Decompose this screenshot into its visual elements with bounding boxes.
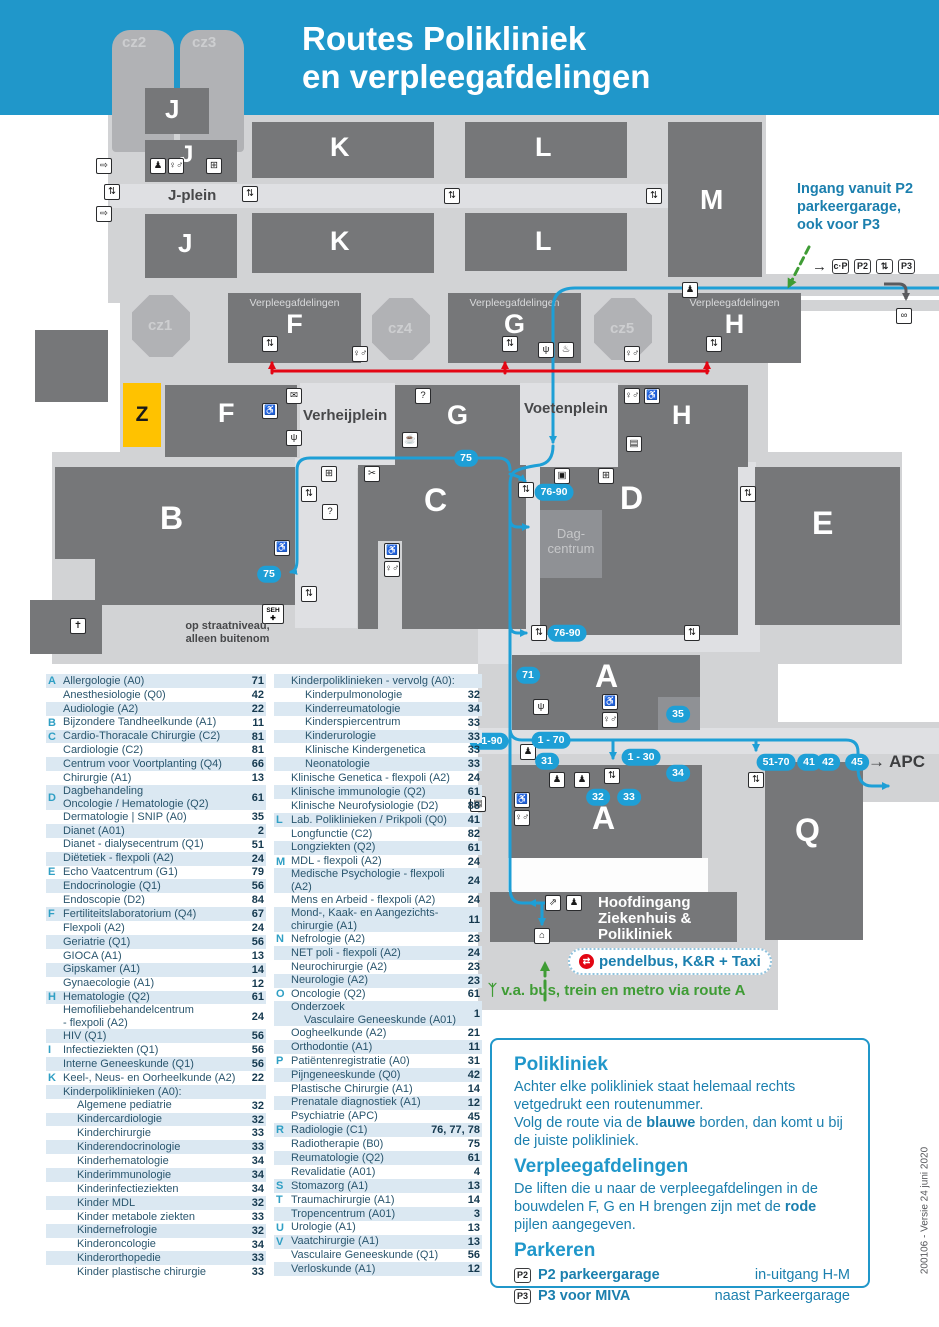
directory-row: Radiotherapie (B0)75	[274, 1137, 482, 1151]
ward-h-label: H	[668, 309, 801, 340]
elevator-icon: ⇅	[684, 625, 700, 641]
directory-route-number: 24	[248, 922, 264, 934]
directory-row: OOncologie (Q2)61	[274, 988, 482, 1002]
directory-row: Klinische Kindergenetica33	[274, 743, 482, 757]
directory-route-number: 32	[248, 1114, 264, 1126]
directory-name: Mond-, Kaak- en Aangezichts-chirurgie (A…	[291, 907, 464, 932]
directory-letter: K	[48, 1072, 63, 1084]
walking-icon: ᛉ	[488, 982, 497, 999]
directory-name: Kinderpoliklinieken - vervolg (A0):	[291, 675, 480, 687]
shop-icon: ⊞	[321, 466, 337, 482]
directory-row: Pijngeneeskunde (Q0)42	[274, 1068, 482, 1082]
directory-row: Audiologie (A2)22	[46, 702, 266, 716]
building-l2-label: L	[535, 226, 552, 257]
bus-route-note: ᛉ v.a. bus, trein en metro via route A	[488, 982, 745, 999]
directory-route-number: 1	[470, 1008, 480, 1020]
legend-p2-label: P2 parkeergarage	[538, 1267, 660, 1283]
directory-name: Gynaecologie (A1)	[63, 977, 248, 989]
arrow-right-icon: →	[812, 258, 827, 275]
directory-route-number: 32	[248, 1100, 264, 1112]
p3-parking-icon: P3	[898, 259, 915, 274]
building-c-ext2	[402, 541, 526, 629]
directory-route-number: 4	[470, 1166, 480, 1178]
directory-name: Cardiologie (C2)	[63, 744, 248, 756]
legend-verpleeg-pre: De liften die u naar de verpleegafdeling…	[514, 1181, 818, 1215]
directory-row: Gipskamer (A1)14	[46, 963, 266, 977]
directory-row: Kinderpulmonologie32	[274, 688, 482, 702]
directory-row: PPatiëntenregistratie (A0)31	[274, 1054, 482, 1068]
lift-icon: ⇅	[876, 259, 893, 274]
directory-route-number: 66	[248, 758, 264, 770]
directory-route-number: 32	[464, 689, 480, 701]
route-bubble-34: 34	[666, 765, 690, 782]
building-m-label: M	[700, 184, 723, 216]
directory-name: Kinder MDL	[63, 1197, 248, 1209]
directory-name: Verloskunde (A1)	[291, 1263, 464, 1275]
verheijplein-square	[300, 383, 395, 468]
directory-route-number: 14	[464, 1194, 480, 1206]
toilets-icon: ♀♂	[384, 561, 400, 577]
directory-name: Medische Psychologie - flexpoli (A2)	[291, 868, 464, 893]
directory-name: Nefrologie (A2)	[291, 933, 464, 945]
directory-row: Cardiologie (C2)81	[46, 743, 266, 757]
elevator-icon: ⇅	[646, 188, 662, 204]
directory-name-line2: chirurgie (A1)	[291, 920, 464, 932]
directory-name: Longziekten (Q2)	[291, 841, 464, 853]
wheelchair-icon: ♿	[274, 540, 290, 556]
directory-name: Anesthesiologie (Q0)	[63, 689, 248, 701]
bell-icon: ♨	[558, 342, 574, 358]
building-e	[755, 467, 900, 625]
street-level-note-line2: alleen buitenom	[186, 633, 270, 645]
directory-route-number: 51	[248, 839, 264, 851]
directory-letter: C	[48, 731, 63, 743]
directory-name: Klinische Neurofysiologie (D2)	[291, 800, 464, 812]
directory-name: Bijzondere Tandheelkunde (A1)	[63, 716, 248, 728]
directory-row: NNefrologie (A2)23	[274, 932, 482, 946]
directory-row: Diëtetiek - flexpoli (A2)24	[46, 852, 266, 866]
directory-route-number: 56	[248, 936, 264, 948]
directory-route-number: 71	[248, 675, 264, 687]
directory-name: Endocrinologie (Q1)	[63, 880, 248, 892]
directory-route-number: 81	[248, 731, 264, 743]
directory-column-2: Kinderpoliklinieken - vervolg (A0):Kinde…	[274, 674, 482, 1276]
route-bubble-76-90: 76-90	[548, 625, 587, 642]
directory-row: Chirurgie (A1)13	[46, 771, 266, 785]
directory-name: Kindernefrologie	[63, 1224, 248, 1236]
route-bubble-1-70: 1 - 70	[532, 732, 571, 749]
elevator-icon: ⇅	[531, 625, 547, 641]
toilets-icon: ♀♂	[624, 346, 640, 362]
directory-route-number: 24	[248, 853, 264, 865]
directory-letter: H	[48, 991, 63, 1003]
directory-name: Kinder plastische chirurgie	[63, 1266, 248, 1278]
directory-route-number: 42	[248, 689, 264, 701]
pendelbus-label: pendelbus, K&R + Taxi	[599, 953, 761, 970]
directory-row: TTraumachirurgie (A1)14	[274, 1193, 482, 1207]
wheelchair-icon: ♿	[644, 388, 660, 404]
tower-cz3-label: cz3	[192, 34, 216, 51]
directory-row: Kinderorthopedie33	[46, 1251, 266, 1265]
elevator-icon: ⇅	[604, 768, 620, 784]
legend-verpleeg-post: pijlen aangegeven.	[514, 1217, 636, 1233]
apc-text: APC	[889, 752, 925, 771]
directory-name: NET poli - flexpoli (A2)	[291, 947, 464, 959]
directory-row: AAllergologie (A0)71	[46, 674, 266, 688]
directory-row: IInfectieziekten (Q1)56	[46, 1043, 266, 1057]
toilets-icon: ♀♂	[602, 712, 618, 728]
directory-row: Longfunctie (C2)82	[274, 827, 482, 841]
directory-name: Lab. Poliklinieken / Prikpoli (Q0)	[291, 814, 464, 826]
directory-route-number: 67	[248, 908, 264, 920]
page-title-line1: Routes Polikliniek	[302, 20, 650, 58]
directory-route-number: 22	[248, 1072, 264, 1084]
building-a-lower-label: A	[592, 800, 615, 837]
directory-name: Gipskamer (A1)	[63, 963, 248, 975]
wheelchair-icon: ♿	[602, 694, 618, 710]
directory-route-number: 76, 77, 78	[427, 1124, 480, 1136]
seh-label: SEH	[266, 607, 279, 614]
entrance-hall	[508, 858, 708, 892]
directory-route-number: 11	[464, 914, 480, 926]
directory-route-number: 23	[464, 961, 480, 973]
legend-polikliniek-p1: Achter elke polikliniek staat helemaal r…	[514, 1078, 850, 1114]
directory-name: Psychiatrie (APC)	[291, 1110, 464, 1122]
directory-row: Neonatologie33	[274, 757, 482, 771]
directory-name-line2: Oncologie / Hematologie (Q2)	[63, 798, 248, 810]
directory-name: Kinderpoliklinieken (A0):	[63, 1086, 264, 1098]
street-level-note: op straatniveau, alleen buitenom	[165, 620, 290, 646]
directory-name: Urologie (A1)	[291, 1221, 464, 1233]
elevator-icon: ⇅	[518, 482, 534, 498]
directory-row: Revalidatie (A01)4	[274, 1165, 482, 1179]
directory-name: Neurochirurgie (A2)	[291, 961, 464, 973]
directory-name: Longfunctie (C2)	[291, 828, 464, 840]
directory-row: Mond-, Kaak- en Aangezichts-chirurgie (A…	[274, 907, 482, 932]
ward-h-title: Verpleegafdelingen	[668, 297, 801, 309]
directory-name-line2: - flexpoli (A2)	[63, 1017, 248, 1029]
directory-row: Centrum voor Voortplanting (Q4)66	[46, 757, 266, 771]
directory-route-number: 3	[470, 1208, 480, 1220]
directory-route-number: 33	[248, 1141, 264, 1153]
directory-row: Gynaecologie (A1)12	[46, 977, 266, 991]
wheelchair-icon: ♿	[384, 543, 400, 559]
bicycle-icon: ∞	[896, 308, 912, 324]
directory-row: Tropencentrum (A01)3	[274, 1207, 482, 1221]
directory-name: Geriatrie (Q1)	[63, 936, 248, 948]
directory-row: UUrologie (A1)13	[274, 1221, 482, 1235]
directory-route-number: 13	[464, 1222, 480, 1234]
reception-icon: ♟	[682, 282, 698, 298]
directory-route-number: 34	[248, 1155, 264, 1167]
directory-route-number: 75	[464, 1138, 480, 1150]
directory-name: Vasculaire Geneeskunde (Q1)	[291, 1249, 464, 1261]
directory-name: Chirurgie (A1)	[63, 772, 248, 784]
directory-name: Cardio-Thoracale Chirurgie (C2)	[63, 730, 248, 742]
directory-name: Radiologie (C1)	[291, 1124, 427, 1136]
directory-route-number: 79	[248, 866, 264, 878]
screen-icon: ▤	[626, 436, 642, 452]
directory-row: Interne Geneeskunde (Q1)56	[46, 1057, 266, 1071]
elevator-icon: ⇅	[502, 336, 518, 352]
directory-route-number: 13	[464, 1180, 480, 1192]
directory-route-number: 34	[248, 1239, 264, 1251]
directory-route-number: 81	[248, 744, 264, 756]
directory-route-number: 13	[248, 772, 264, 784]
legend-p2-row: P2 P2 parkeergarage in-uitgang H-M	[514, 1267, 850, 1283]
elevator-icon: ⇅	[301, 486, 317, 502]
route-bubble-51-70: 51-70	[757, 754, 796, 771]
directory-row: EEcho Vaatcentrum (G1)79	[46, 866, 266, 880]
directory-route-number: 35	[248, 811, 264, 823]
directory-row: Hemofiliebehandelcentrum- flexpoli (A2)2…	[46, 1004, 266, 1029]
legend-polikliniek-title: Polikliniek	[514, 1054, 850, 1076]
route-bubble-76-90: 76-90	[535, 484, 574, 501]
directory-route-number: 12	[464, 1097, 480, 1109]
verheijplein-label: Verheijplein	[303, 407, 387, 424]
directory-row: FFertiliteitslaboratorium (Q4)67	[46, 907, 266, 921]
building-j3-label: J	[178, 228, 192, 259]
directory-name: Neurologie (A2)	[291, 974, 464, 986]
directory-name: Dianet (A01)	[63, 825, 254, 837]
toilets-icon: ♀♂	[352, 346, 368, 362]
exit-icon: ⇨	[96, 158, 112, 174]
apc-arrow-icon: →	[868, 752, 885, 771]
directory-row: Neurochirurgie (A2)23	[274, 960, 482, 974]
directory-route-number: 56	[248, 1030, 264, 1042]
legend-polikliniek-p2: Volg de route via de blauwe borden, dan …	[514, 1114, 850, 1150]
directory-name: Tropencentrum (A01)	[291, 1208, 470, 1220]
directory-route-number: 33	[248, 1211, 264, 1223]
directory-row: Neurologie (A2)23	[274, 974, 482, 988]
dagcentrum-line1: Dag-	[557, 526, 585, 541]
directory-route-number: 45	[464, 1111, 480, 1123]
atm-icon: ▣	[554, 468, 570, 484]
p2-entrance-note: Ingang vanuit P2 parkeergarage, ook voor…	[797, 180, 913, 234]
directory-name: Centrum voor Voortplanting (Q4)	[63, 758, 248, 770]
scissors-icon: ✂	[364, 466, 380, 482]
directory-name: Kinderhematologie	[63, 1155, 248, 1167]
ward-h: Verpleegafdelingen H	[668, 293, 801, 363]
info-icon: ?	[415, 388, 431, 404]
door-icon: ⌂	[534, 928, 550, 944]
directory-name: Vaatchirurgie (A1)	[291, 1235, 464, 1247]
directory-row: Kinderimmunologie34	[46, 1168, 266, 1182]
directory-route-number: 56	[248, 1058, 264, 1070]
directory-row: Kinderpoliklinieken (A0):	[46, 1085, 266, 1099]
directory-route-number: 23	[464, 933, 480, 945]
directory-route-number: 14	[248, 964, 264, 976]
page-title: Routes Polikliniek en verpleegafdelingen	[302, 20, 650, 96]
directory-name: Orthodontie (A1)	[291, 1041, 464, 1053]
route-bubble-31: 31	[535, 753, 559, 770]
directory-letter: D	[48, 792, 63, 804]
ward-g-title: Verpleegafdelingen	[448, 297, 581, 309]
route-bubble-75: 75	[257, 566, 281, 583]
wheelchair-icon: ♿	[262, 403, 278, 419]
directory-letter: O	[276, 988, 291, 1000]
directory-row: Kinderoncologie34	[46, 1238, 266, 1252]
building-k1-label: K	[330, 132, 350, 163]
legend-p2-bold: blauwe	[646, 1115, 695, 1131]
restaurant-icon: ψ	[538, 342, 554, 358]
legend-box: Polikliniek Achter elke polikliniek staa…	[490, 1038, 870, 1288]
route-bubble-71: 71	[516, 667, 540, 684]
building-j1-label: J	[165, 94, 179, 125]
directory-name: Interne Geneeskunde (Q1)	[63, 1058, 248, 1070]
directory-route-number: 61	[248, 792, 264, 804]
directory-route-number: 24	[464, 875, 480, 887]
shop-icon: ⊞	[206, 158, 222, 174]
directory-route-number: 32	[248, 1225, 264, 1237]
directory-route-number: 12	[248, 978, 264, 990]
p2-entrance-line1: Ingang vanuit P2	[797, 180, 913, 198]
church-icon: ✝	[70, 618, 86, 634]
route-bubble-45: 45	[845, 754, 869, 771]
restaurant-icon: ψ	[533, 699, 549, 715]
building-q-label: Q	[795, 812, 820, 849]
restaurant-icon: ψ	[286, 430, 302, 446]
directory-row: Kinderreumatologie34	[274, 702, 482, 716]
directory-row: LLab. Poliklinieken / Prikpoli (Q0)41	[274, 813, 482, 827]
voetenplein-label: Voetenplein	[524, 400, 608, 417]
directory-name: Dermatologie | SNIP (A0)	[63, 811, 248, 823]
apc-corridor	[858, 772, 939, 802]
directory-route-number: 34	[464, 703, 480, 715]
elevator-icon: ⇅	[706, 336, 722, 352]
directory-name: Kinderinfectieziekten	[63, 1183, 248, 1195]
page-title-line2: en verpleegafdelingen	[302, 58, 650, 96]
directory-letter: M	[276, 856, 291, 868]
directory-route-number: 33	[464, 717, 480, 729]
elevator-icon: ⇅	[748, 772, 764, 788]
directory-letter: B	[48, 717, 63, 729]
directory-route-number: 14	[464, 1083, 480, 1095]
directory-name: Hematologie (Q2)	[63, 991, 248, 1003]
directory-row: HIV (Q1)56	[46, 1029, 266, 1043]
p2-parking-icon: P2	[514, 1268, 531, 1283]
directory-letter: N	[276, 933, 291, 945]
directory-letter: R	[276, 1124, 291, 1136]
directory-row: Kinderpoliklinieken - vervolg (A0):	[274, 674, 482, 688]
directory-name: Kinderreumatologie	[291, 703, 464, 715]
pendelbus-icon: ⇄	[579, 954, 594, 969]
street-level-note-line1: op straatniveau,	[185, 620, 269, 632]
legend-verpleeg-p: De liften die u naar de verpleegafdeling…	[514, 1180, 850, 1234]
directory-row: Verloskunde (A1)12	[274, 1262, 482, 1276]
cp-parking-icon: c·P	[832, 259, 849, 274]
mail-icon: ✉	[286, 388, 302, 404]
directory-row: Dianet (A01)2	[46, 824, 266, 838]
route-bubble-42: 42	[816, 754, 840, 771]
directory-name: Patiëntenregistratie (A0)	[291, 1055, 464, 1067]
building-z-label: Z	[136, 403, 149, 427]
directory-row: NET poli - flexpoli (A2)24	[274, 946, 482, 960]
tower-cz2-label: cz2	[122, 34, 146, 51]
directory-route-number: 56	[248, 880, 264, 892]
bus-route-note-text: v.a. bus, trein en metro via route A	[501, 982, 745, 999]
directory-route-number: 11	[464, 1041, 480, 1053]
elevator-icon: ⇅	[104, 184, 120, 200]
directory-route-number: 61	[464, 842, 480, 854]
p2-entrance-line2: parkeergarage,	[797, 198, 913, 216]
directory-name: Kindercardiologie	[63, 1113, 248, 1125]
directory-route-number: 33	[464, 758, 480, 770]
legend-parkeren-title: Parkeren	[514, 1240, 850, 1262]
directory-row: Kindernefrologie32	[46, 1224, 266, 1238]
directory-row: DDagbehandelingOncologie / Hematologie (…	[46, 785, 266, 810]
directory-row: Dermatologie | SNIP (A0)35	[46, 810, 266, 824]
c-lobby-corridor	[295, 458, 357, 628]
directory-row: Medische Psychologie - flexpoli (A2)24	[274, 868, 482, 893]
directory-letter: E	[48, 866, 63, 878]
directory-name: Keel-, Neus- en Oorheelkunde (A2)	[63, 1072, 248, 1084]
directory-column-1: AAllergologie (A0)71Anesthesiologie (Q0)…	[46, 674, 266, 1279]
parking-icon-row: → c·P P2 ⇅ P3	[812, 258, 915, 275]
p2-parking-icon: P2	[854, 259, 871, 274]
directory-row: Kinderchirurgie33	[46, 1126, 266, 1140]
building-z: Z	[123, 383, 161, 447]
version-text: 200106 - Versie 24 juni 2020	[920, 1131, 931, 1291]
directory-letter: A	[48, 675, 63, 687]
p3-parking-icon: P3	[514, 1289, 531, 1304]
directory-row: CCardio-Thoracale Chirurgie (C2)81	[46, 730, 266, 744]
legend-p2-right: in-uitgang H-M	[755, 1267, 850, 1283]
legend-verpleeg-title: Verpleegafdelingen	[514, 1156, 850, 1178]
route-bubble-75: 75	[454, 450, 478, 467]
directory-row: Endoscopie (D2)84	[46, 893, 266, 907]
p2-entrance-line3: ook voor P3	[797, 216, 913, 234]
directory-letter: S	[276, 1180, 291, 1192]
person-icon: ♟	[574, 772, 590, 788]
directory-route-number: 33	[248, 1266, 264, 1278]
directory-name: HIV (Q1)	[63, 1030, 248, 1042]
dagcentrum-block: Dag- centrum	[540, 510, 602, 578]
directory-name: Infectieziekten (Q1)	[63, 1044, 248, 1056]
directory-route-number: 56	[248, 1044, 264, 1056]
dagcentrum-line2: centrum	[548, 541, 595, 556]
directory-route-number: 82	[464, 828, 480, 840]
directory-route-number: 2	[254, 825, 264, 837]
directory-name: Pijngeneeskunde (Q0)	[291, 1069, 464, 1081]
directory-route-number: 24	[464, 947, 480, 959]
pendelbus-badge: ⇄ pendelbus, K&R + Taxi	[568, 948, 772, 975]
directory-route-number: 41	[464, 814, 480, 826]
building-chapel-block	[30, 600, 102, 654]
directory-name: Klinische Genetica - flexpoli (A2)	[291, 772, 464, 784]
legend-p3-row: P3 P3 voor MIVA naast Parkeergarage	[514, 1288, 850, 1304]
directory-name: Klinische immunologie (Q2)	[291, 786, 464, 798]
building-f-label: F	[218, 398, 235, 429]
directory-row: KKeel-, Neus- en Oorheelkunde (A2)22	[46, 1071, 266, 1085]
hoofdingang-label: Hoofdingang Ziekenhuis & Polikliniek	[598, 895, 691, 943]
directory-row: Reumatologie (Q2)61	[274, 1151, 482, 1165]
directory-name: Klinische Kindergenetica	[291, 744, 464, 756]
directory-name: Flexpoli (A2)	[63, 922, 248, 934]
route-bubble-32: 32	[586, 789, 610, 806]
directory-row: Endocrinologie (Q1)56	[46, 879, 266, 893]
dagcentrum-label: Dag- centrum	[540, 526, 602, 556]
directory-name: Kinderimmunologie	[63, 1169, 248, 1181]
directory-row: RRadiologie (C1)76, 77, 78	[274, 1123, 482, 1137]
directory-row: Kinder MDL32	[46, 1196, 266, 1210]
directory-row: BBijzondere Tandheelkunde (A1)11	[46, 716, 266, 730]
directory-name: Echo Vaatcentrum (G1)	[63, 866, 248, 878]
directory-row: OnderzoekVasculaire Geneeskunde (A01)1	[274, 1001, 482, 1026]
directory-route-number: 61	[464, 786, 480, 798]
directory-letter: F	[48, 908, 63, 920]
directory-route-number: 56	[464, 1249, 480, 1261]
